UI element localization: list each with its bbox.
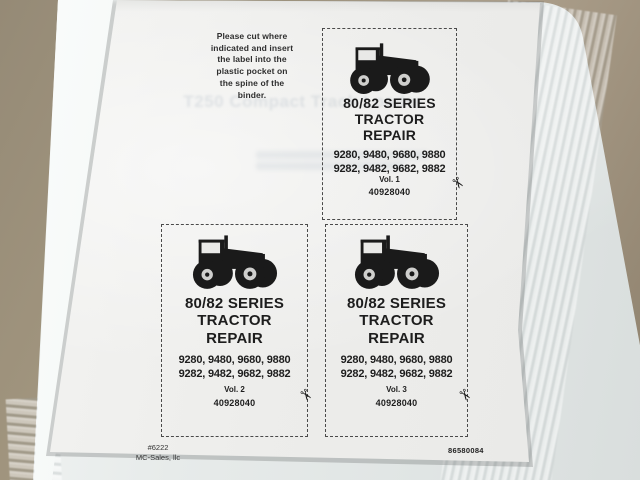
models-line: 9282, 9482, 9682, 9882 bbox=[326, 367, 467, 381]
series-title: 80/82 SERIES TRACTOR REPAIR bbox=[162, 295, 307, 347]
series-line: REPAIR bbox=[162, 330, 307, 347]
model-numbers: 9280, 9480, 9680, 9880 9282, 9482, 9682,… bbox=[323, 148, 456, 176]
series-title: 80/82 SERIES TRACTOR REPAIR bbox=[326, 295, 467, 347]
instruction-line: the spine of the bbox=[193, 78, 311, 90]
volume-number: Vol. 1 bbox=[323, 175, 456, 184]
printer-credit: #6222 MC-Sales, llc bbox=[118, 443, 198, 463]
series-line: REPAIR bbox=[323, 127, 456, 143]
models-line: 9280, 9480, 9680, 9880 bbox=[323, 148, 456, 162]
series-line: TRACTOR bbox=[326, 312, 467, 329]
instruction-line: binder. bbox=[193, 90, 311, 102]
instruction-line: indicated and insert bbox=[193, 43, 311, 55]
tractor-illustration bbox=[344, 42, 436, 96]
spine-label-vol2: 80/82 SERIES TRACTOR REPAIR 9280, 9480, … bbox=[161, 224, 308, 437]
model-numbers: 9280, 9480, 9680, 9880 9282, 9482, 9682,… bbox=[326, 353, 467, 381]
series-line: TRACTOR bbox=[162, 312, 307, 329]
company-name: MC-Sales, llc bbox=[118, 453, 198, 463]
form-number: 86580084 bbox=[448, 446, 484, 455]
instruction-line: the label into the bbox=[193, 54, 311, 66]
order-number: #6222 bbox=[118, 443, 198, 453]
instruction-line: plastic pocket on bbox=[193, 66, 311, 78]
part-number: 40928040 bbox=[162, 398, 307, 408]
instruction-line: Please cut where bbox=[193, 31, 311, 43]
series-line: TRACTOR bbox=[323, 111, 456, 127]
tractor-illustration bbox=[348, 234, 446, 291]
series-line: 80/82 SERIES bbox=[326, 295, 467, 312]
spine-label-vol3: 80/82 SERIES TRACTOR REPAIR 9280, 9480, … bbox=[325, 224, 468, 437]
volume-number: Vol. 3 bbox=[326, 385, 467, 394]
series-line: 80/82 SERIES bbox=[323, 95, 456, 111]
photo-of-binder: T250 Compact Track Loader Please cut whe… bbox=[0, 0, 640, 480]
part-number: 40928040 bbox=[323, 187, 456, 197]
model-numbers: 9280, 9480, 9680, 9880 9282, 9482, 9682,… bbox=[162, 353, 307, 381]
spine-label-vol1: 80/82 SERIES TRACTOR REPAIR 9280, 9480, … bbox=[322, 28, 457, 220]
sheet-content: T250 Compact Track Loader Please cut whe… bbox=[0, 0, 640, 480]
series-line: REPAIR bbox=[326, 330, 467, 347]
models-line: 9280, 9480, 9680, 9880 bbox=[162, 353, 307, 367]
models-line: 9280, 9480, 9680, 9880 bbox=[326, 353, 467, 367]
series-line: 80/82 SERIES bbox=[162, 295, 307, 312]
tractor-illustration bbox=[186, 234, 284, 291]
cutting-instructions: Please cut where indicated and insert th… bbox=[193, 31, 311, 101]
volume-number: Vol. 2 bbox=[162, 385, 307, 394]
series-title: 80/82 SERIES TRACTOR REPAIR bbox=[323, 95, 456, 144]
part-number: 40928040 bbox=[326, 398, 467, 408]
models-line: 9282, 9482, 9682, 9882 bbox=[162, 367, 307, 381]
